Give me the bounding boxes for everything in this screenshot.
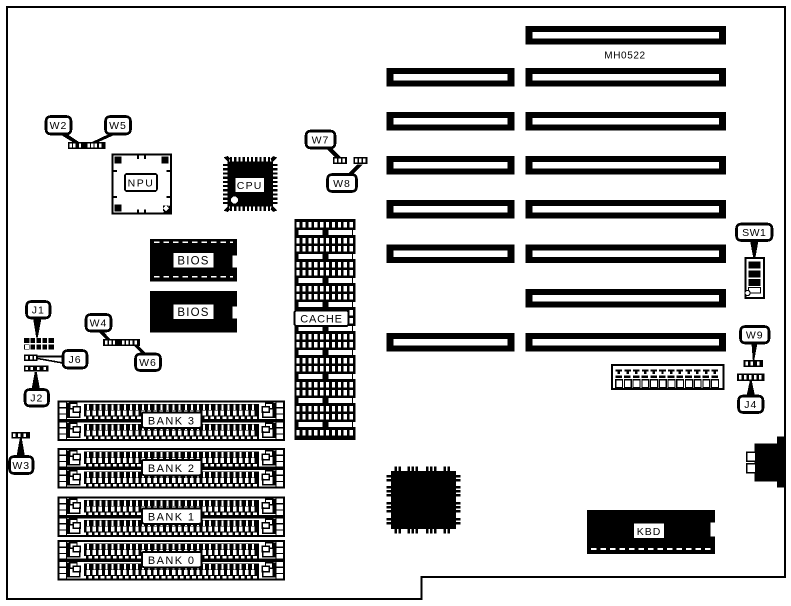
svg-text:BANK 2: BANK 2 — [148, 463, 196, 475]
svg-text:BANK 1: BANK 1 — [148, 511, 196, 523]
svg-text:W2: W2 — [50, 120, 68, 132]
svg-text:BIOS: BIOS — [177, 307, 209, 319]
svg-text:BANK 3: BANK 3 — [148, 415, 196, 427]
svg-text:KBD: KBD — [637, 526, 662, 538]
svg-text:NPU: NPU — [128, 178, 155, 190]
svg-text:SW1: SW1 — [742, 227, 766, 239]
svg-text:W4: W4 — [90, 318, 108, 330]
svg-text:W7: W7 — [312, 134, 330, 146]
svg-text:W5: W5 — [109, 120, 127, 132]
svg-text:J4: J4 — [744, 399, 757, 411]
svg-text:CPU: CPU — [237, 180, 263, 192]
svg-text:W9: W9 — [746, 330, 764, 342]
svg-text:J2: J2 — [30, 393, 43, 405]
svg-text:MH0522: MH0522 — [604, 51, 645, 62]
svg-text:BANK 0: BANK 0 — [148, 555, 196, 567]
svg-text:W6: W6 — [139, 357, 157, 369]
svg-text:J1: J1 — [32, 305, 45, 317]
svg-text:W3: W3 — [12, 460, 30, 472]
svg-text:CACHE: CACHE — [300, 314, 343, 326]
svg-text:BIOS: BIOS — [177, 255, 209, 267]
svg-text:J6: J6 — [68, 354, 81, 366]
svg-text:W8: W8 — [333, 178, 351, 190]
